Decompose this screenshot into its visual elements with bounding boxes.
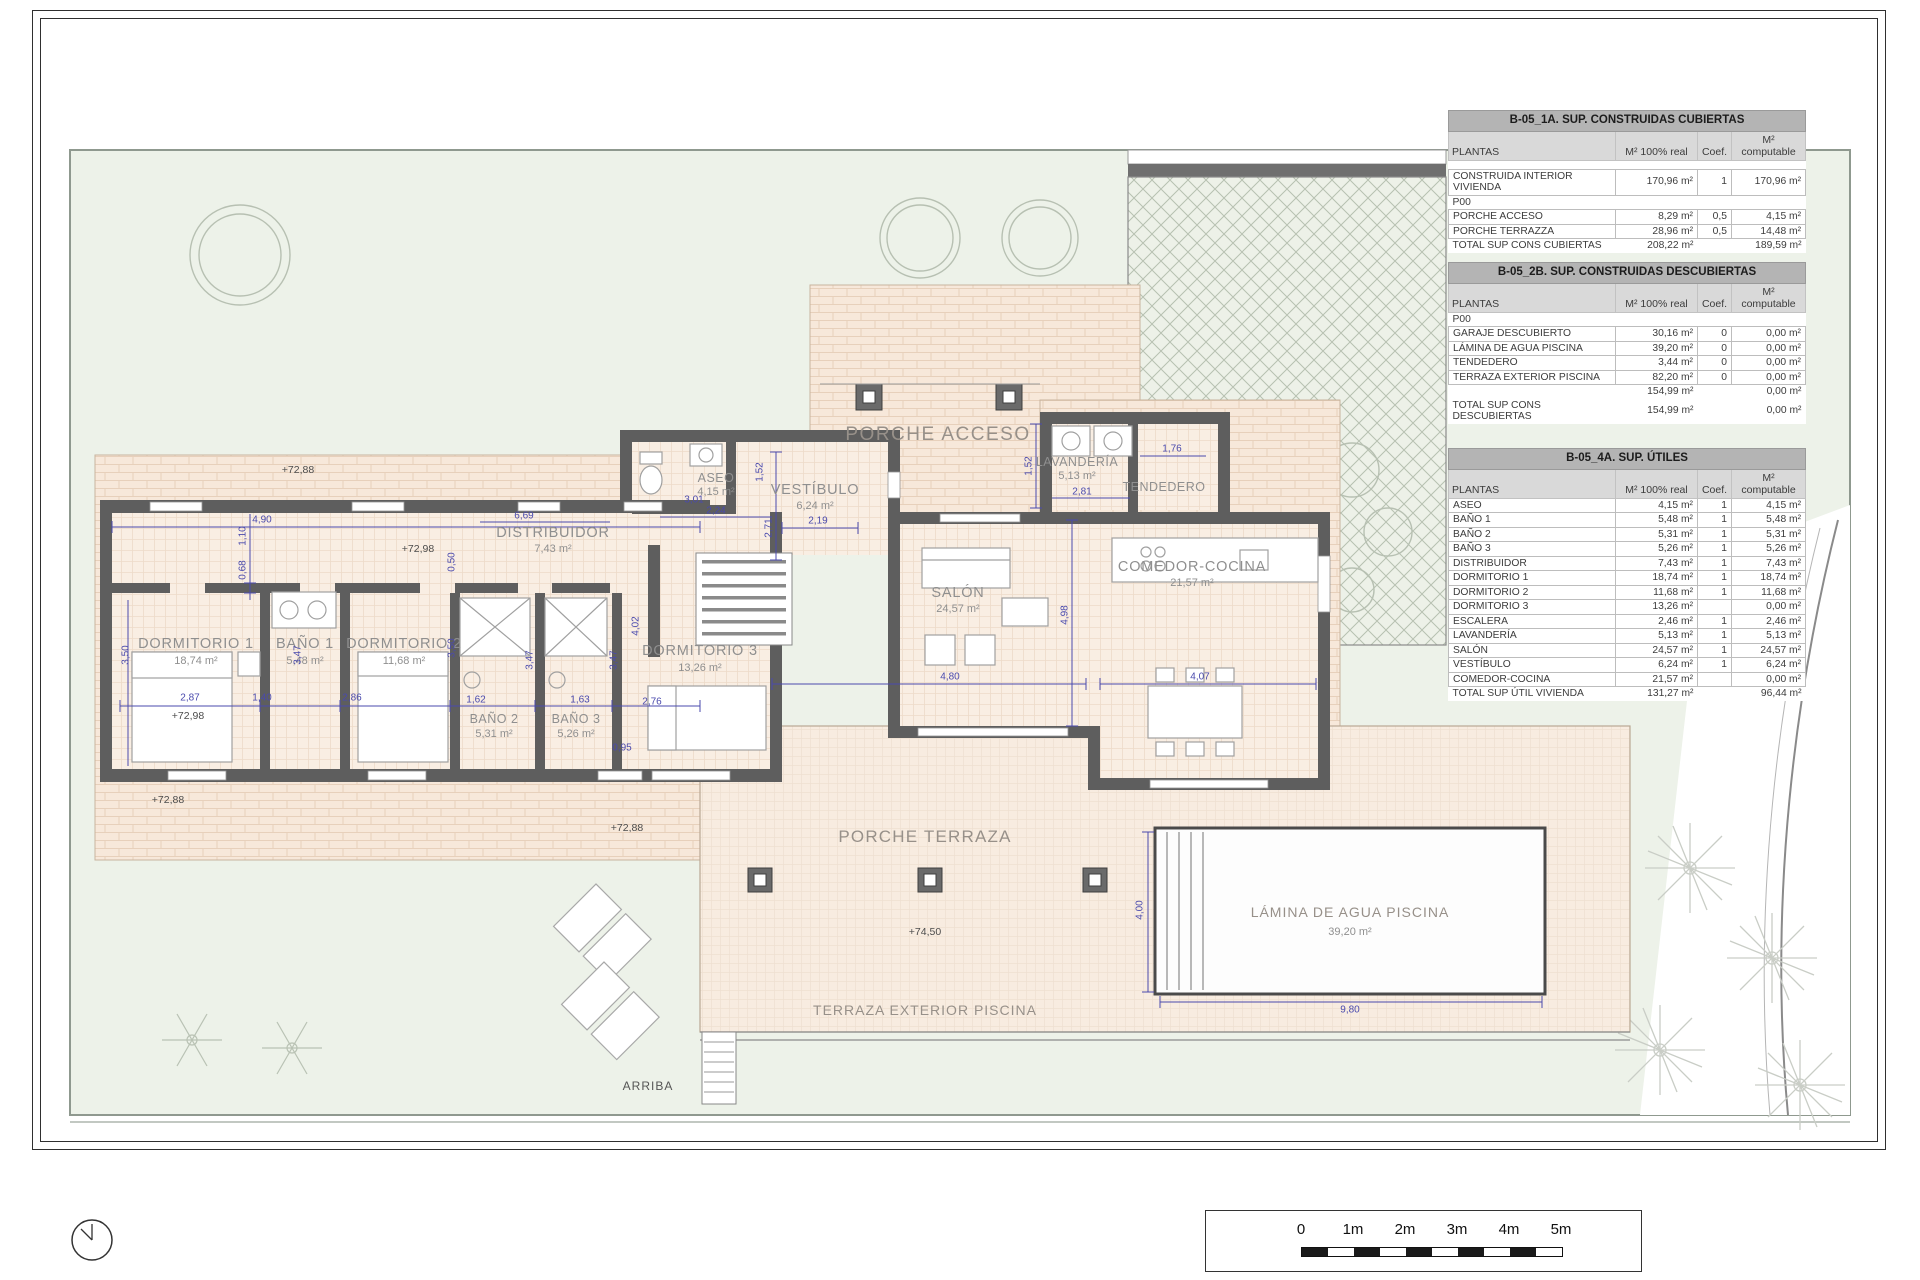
dimension-label: 4,80 bbox=[940, 672, 959, 683]
table-title-row: B-05_4A. SUP. ÚTILES bbox=[1449, 449, 1806, 470]
dimension-label: 2,76 bbox=[642, 697, 661, 708]
table-total-row: TOTAL SUP CONS CUBIERTAS208,22 m²189,59 … bbox=[1449, 239, 1806, 253]
table-row: DORMITORIO 211,68 m²111,68 m² bbox=[1449, 585, 1806, 600]
scale-bar-segments bbox=[1301, 1247, 1563, 1257]
dimension-label: 1,52 bbox=[1024, 456, 1035, 475]
room-area-bano-3: 5,26 m² bbox=[557, 728, 594, 740]
room-label-aseo: ASEO bbox=[698, 471, 735, 485]
dimension-label: 2,81 bbox=[1072, 487, 1091, 498]
table-row: LÁMINA DE AGUA PISCINA39,20 m²00,00 m² bbox=[1449, 341, 1806, 356]
col-header: M² 100% real bbox=[1616, 469, 1698, 498]
table-title: B-05_4A. SUP. ÚTILES bbox=[1449, 449, 1806, 470]
table-row: BAÑO 15,48 m²15,48 m² bbox=[1449, 513, 1806, 528]
scale-bar: 0 1m 2m 3m 4m 5m bbox=[1205, 1210, 1642, 1272]
dimension-label: 3,47 bbox=[525, 650, 536, 669]
dimension-label: 0,95 bbox=[612, 743, 631, 754]
room-label-dormitorio-1: DORMITORIO 1 bbox=[138, 636, 254, 652]
room-label-vestibulo: VESTÍBULO bbox=[771, 482, 860, 498]
col-header: PLANTAS bbox=[1449, 469, 1616, 498]
scale-label-0: 0 bbox=[1297, 1221, 1305, 1238]
room-label-bano-3: BAÑO 3 bbox=[552, 712, 601, 726]
dimension-label: 4,02 bbox=[631, 616, 642, 635]
table-row: CONSTRUIDA INTERIOR VIVIENDA170,96 m²117… bbox=[1449, 169, 1806, 195]
table-row: COMEDOR-COCINA21,57 m²0,00 m² bbox=[1449, 672, 1806, 687]
table-row: BAÑO 25,31 m²15,31 m² bbox=[1449, 527, 1806, 542]
dimension-label: 2,71 bbox=[764, 518, 775, 537]
dimension-label: 1,62 bbox=[466, 695, 485, 706]
dimension-label: 2,19 bbox=[808, 516, 827, 527]
table-title-row: B-05_2B. SUP. CONSTRUIDAS DESCUBIERTAS bbox=[1449, 263, 1806, 284]
table-total-row: TOTAL SUP CONS DESCUBIERTAS154,99 m²0,00… bbox=[1449, 399, 1806, 424]
table-row: P00 bbox=[1449, 195, 1806, 210]
level-mark: +72,88 bbox=[152, 794, 184, 806]
col-header: M² 100% real bbox=[1616, 283, 1698, 312]
table-sup-construidas-cubiertas: B-05_1A. SUP. CONSTRUIDAS CUBIERTAS PLAN… bbox=[1448, 110, 1806, 253]
scale-label-4m: 4m bbox=[1499, 1221, 1520, 1238]
room-area-dormitorio-1: 18,74 m² bbox=[174, 655, 217, 667]
room-label-dormitorio-2: DORMITORIO 2 bbox=[346, 636, 462, 652]
clock-icon bbox=[62, 1210, 122, 1270]
room-area-vestibulo: 6,24 m² bbox=[796, 500, 833, 512]
scale-label-1m: 1m bbox=[1343, 1221, 1364, 1238]
table-row: GARAJE DESCUBIERTO30,16 m²00,00 m² bbox=[1449, 327, 1806, 342]
dimension-label: 1,76 bbox=[1162, 444, 1181, 455]
table-title-row: B-05_1A. SUP. CONSTRUIDAS CUBIERTAS bbox=[1449, 111, 1806, 132]
table-row: 154,99 m²0,00 m² bbox=[1449, 385, 1806, 399]
col-header: M² computable bbox=[1732, 131, 1806, 160]
dimension-label: 3,47 bbox=[609, 650, 620, 669]
table-title: B-05_1A. SUP. CONSTRUIDAS CUBIERTAS bbox=[1449, 111, 1806, 132]
scale-label-2m: 2m bbox=[1395, 1221, 1416, 1238]
table-row: BAÑO 35,26 m²15,26 m² bbox=[1449, 542, 1806, 557]
room-area-lavanderia: 5,13 m² bbox=[1058, 470, 1095, 482]
dimension-label: 4,00 bbox=[1135, 900, 1146, 919]
dimension-label: 3,50 bbox=[447, 638, 458, 657]
col-header: PLANTAS bbox=[1449, 131, 1616, 160]
col-header: Coef. bbox=[1698, 283, 1732, 312]
table-sup-utiles: B-05_4A. SUP. ÚTILES PLANTAS M² 100% rea… bbox=[1448, 448, 1806, 701]
dimension-label: 3,01 bbox=[684, 495, 703, 506]
level-mark: +74,50 bbox=[909, 926, 941, 938]
area-value-lamina-agua-piscina: 39,20 m² bbox=[1328, 926, 1371, 938]
dimension-label: 3,47 bbox=[293, 645, 304, 664]
table-row: TENDEDERO3,44 m²00,00 m² bbox=[1449, 356, 1806, 371]
room-area-dormitorio-3: 13,26 m² bbox=[678, 662, 721, 674]
dimension-label: 1,52 bbox=[755, 462, 766, 481]
room-area-comedor-cocina: 21,57 m² bbox=[1170, 577, 1213, 589]
table-row: VESTÍBULO6,24 m²16,24 m² bbox=[1449, 658, 1806, 673]
room-label-comedor-cocina: COMEDOR-COCINA bbox=[1118, 559, 1266, 575]
table-header-row: PLANTAS M² 100% real Coef. M² computable bbox=[1449, 283, 1806, 312]
room-label-dormitorio-3: DORMITORIO 3 bbox=[642, 643, 758, 659]
room-area-distribuidor: 7,43 m² bbox=[534, 543, 571, 555]
col-header: PLANTAS bbox=[1449, 283, 1616, 312]
dimension-label: 2,86 bbox=[342, 693, 361, 704]
room-label-lavanderia: LAVANDERÍA bbox=[1036, 455, 1118, 469]
room-area-salon: 24,57 m² bbox=[936, 603, 979, 615]
col-header: Coef. bbox=[1698, 469, 1732, 498]
col-header: Coef. bbox=[1698, 131, 1732, 160]
area-label-porche-acceso: PORCHE ACCESO bbox=[845, 424, 1030, 446]
table-header-row: PLANTAS M² 100% real Coef. M² computable bbox=[1449, 131, 1806, 160]
table-sup-construidas-descubiertas: B-05_2B. SUP. CONSTRUIDAS DESCUBIERTAS P… bbox=[1448, 262, 1806, 424]
level-mark: +72,88 bbox=[611, 822, 643, 834]
area-label-lamina-agua-piscina: LÁMINA DE AGUA PISCINA bbox=[1251, 904, 1450, 920]
level-mark: +72,98 bbox=[172, 710, 204, 722]
area-label-terraza-exterior-piscina: TERRAZA EXTERIOR PISCINA bbox=[813, 1002, 1037, 1018]
table-total-row: TOTAL SUP ÚTIL VIVIENDA131,27 m²96,44 m² bbox=[1449, 687, 1806, 701]
dimension-label: 1,40 bbox=[252, 693, 271, 704]
dimension-label: 1,10 bbox=[238, 526, 249, 545]
col-header: M² 100% real bbox=[1616, 131, 1698, 160]
level-mark: +72,88 bbox=[282, 464, 314, 476]
table-row: ESCALERA2,46 m²12,46 m² bbox=[1449, 614, 1806, 629]
dimension-label: 2,24 bbox=[706, 506, 725, 517]
room-area-dormitorio-2: 11,68 m² bbox=[383, 655, 426, 667]
stair-label-arriba: ARRIBA bbox=[623, 1079, 674, 1093]
dimension-label: 4,98 bbox=[1060, 605, 1071, 624]
table-row: TERRAZA EXTERIOR PISCINA82,20 m²00,00 m² bbox=[1449, 370, 1806, 385]
dimension-label: 3,50 bbox=[121, 645, 132, 664]
col-header: M² computable bbox=[1732, 283, 1806, 312]
col-header: M² computable bbox=[1732, 469, 1806, 498]
table-header-row: PLANTAS M² 100% real Coef. M² computable bbox=[1449, 469, 1806, 498]
table-row: P00 bbox=[1449, 312, 1806, 327]
area-label-porche-terraza: PORCHE TERRAZA bbox=[838, 827, 1011, 847]
scale-label-5m: 5m bbox=[1551, 1221, 1572, 1238]
dimension-label: 9,80 bbox=[1340, 1005, 1359, 1016]
table-row: ASEO4,15 m²14,15 m² bbox=[1449, 498, 1806, 513]
table-row: SALÓN24,57 m²124,57 m² bbox=[1449, 643, 1806, 658]
scale-label-3m: 3m bbox=[1447, 1221, 1468, 1238]
floor-plan-sheet: DORMITORIO 1 18,74 m² BAÑO 1 5,48 m² DOR… bbox=[0, 0, 1920, 1280]
dimension-label: 4,90 bbox=[252, 515, 271, 526]
dimension-label: 6,69 bbox=[514, 511, 533, 522]
dimension-label: 2,87 bbox=[180, 693, 199, 704]
dimension-label: 0,50 bbox=[447, 552, 458, 571]
table-row: DISTRIBUIDOR7,43 m²17,43 m² bbox=[1449, 556, 1806, 571]
table-title: B-05_2B. SUP. CONSTRUIDAS DESCUBIERTAS bbox=[1449, 263, 1806, 284]
level-mark: +72,98 bbox=[402, 543, 434, 555]
room-area-bano-2: 5,31 m² bbox=[475, 728, 512, 740]
room-label-bano-1: BAÑO 1 bbox=[276, 636, 334, 652]
table-row: PORCHE TERRAZZA28,96 m²0,514,48 m² bbox=[1449, 224, 1806, 239]
room-label-bano-2: BAÑO 2 bbox=[470, 712, 519, 726]
table-row: DORMITORIO 313,26 m²0,00 m² bbox=[1449, 600, 1806, 615]
dimension-label: 1,63 bbox=[570, 695, 589, 706]
table-row: LAVANDERÍA5,13 m²15,13 m² bbox=[1449, 629, 1806, 644]
dimension-label: 4,07 bbox=[1190, 672, 1209, 683]
room-label-tendedero: TENDEDERO bbox=[1123, 480, 1206, 494]
room-label-distribuidor: DISTRIBUIDOR bbox=[496, 525, 610, 541]
room-label-salon: SALÓN bbox=[931, 585, 984, 601]
dimension-label: 0,68 bbox=[238, 560, 249, 579]
table-row: DORMITORIO 118,74 m²118,74 m² bbox=[1449, 571, 1806, 586]
table-row: PORCHE ACCESO8,29 m²0,54,15 m² bbox=[1449, 210, 1806, 225]
